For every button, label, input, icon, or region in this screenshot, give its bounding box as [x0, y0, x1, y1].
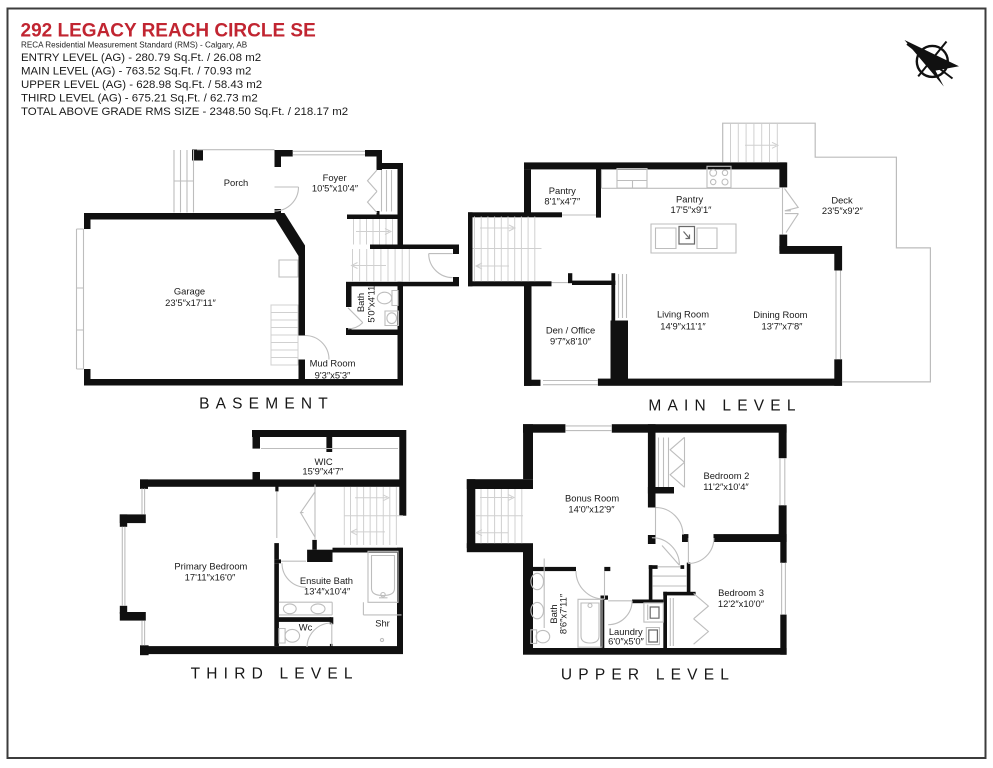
svg-text:13'4″x10'4″: 13'4″x10'4″ [304, 585, 351, 596]
svg-text:13'7″x7'8″: 13'7″x7'8″ [762, 320, 804, 331]
svg-text:BASEMENT: BASEMENT [199, 396, 334, 413]
svg-text:10'5″x10'4″: 10'5″x10'4″ [312, 183, 359, 194]
svg-text:8'6″x7'11″: 8'6″x7'11″ [558, 593, 569, 634]
svg-text:THIRD LEVEL: THIRD LEVEL [191, 666, 359, 683]
svg-text:MAIN LEVEL (AG) - 763.52 Sq.Ft: MAIN LEVEL (AG) - 763.52 Sq.Ft. / 70.93 … [21, 66, 251, 78]
svg-text:14'0″x12'9″: 14'0″x12'9″ [568, 504, 615, 515]
svg-text:Shr: Shr [375, 618, 390, 629]
svg-text:292 LEGACY REACH CIRCLE SE: 292 LEGACY REACH CIRCLE SE [21, 21, 316, 42]
svg-text:9'3″x5'3″: 9'3″x5'3″ [315, 370, 351, 381]
svg-text:Deck: Deck [831, 195, 853, 206]
svg-text:Primary Bedroom: Primary Bedroom [174, 560, 247, 571]
svg-text:23'5″x17'11″: 23'5″x17'11″ [165, 297, 216, 308]
svg-text:17'11″x16'0″: 17'11″x16'0″ [185, 571, 236, 582]
svg-text:6'0″x5'0″: 6'0″x5'0″ [608, 636, 644, 647]
svg-text:Porch: Porch [224, 177, 249, 188]
svg-text:UPPER LEVEL: UPPER LEVEL [561, 667, 735, 684]
svg-text:23'5″x9'2″: 23'5″x9'2″ [822, 205, 864, 216]
svg-text:15'9″x4'7″: 15'9″x4'7″ [302, 466, 344, 477]
svg-text:Living Room: Living Room [657, 309, 709, 320]
svg-text:Den / Office: Den / Office [546, 325, 595, 336]
svg-text:Mud Room: Mud Room [310, 358, 356, 369]
svg-text:Dining Room: Dining Room [753, 309, 807, 320]
svg-text:9'7″x8'10″: 9'7″x8'10″ [550, 336, 592, 347]
svg-text:Ensuite Bath: Ensuite Bath [300, 575, 353, 586]
svg-text:TOTAL ABOVE GRADE RMS SIZE - 2: TOTAL ABOVE GRADE RMS SIZE - 2348.50 Sq.… [21, 106, 348, 118]
svg-text:Foyer: Foyer [323, 172, 347, 183]
svg-text:Wc: Wc [299, 622, 313, 633]
svg-text:Bonus Room: Bonus Room [565, 492, 619, 503]
svg-text:ENTRY LEVEL (AG) - 280.79 Sq.F: ENTRY LEVEL (AG) - 280.79 Sq.Ft. / 26.08… [21, 52, 261, 64]
svg-text:Garage: Garage [174, 286, 205, 297]
svg-text:RECA Residential Measurement S: RECA Residential Measurement Standard (R… [21, 41, 247, 50]
svg-text:Bath: Bath [355, 293, 366, 312]
svg-text:11'2″x10'4″: 11'2″x10'4″ [703, 481, 749, 492]
svg-text:Bedroom 2: Bedroom 2 [703, 470, 749, 481]
svg-text:17'5″x9'1″: 17'5″x9'1″ [671, 204, 713, 215]
svg-text:MAIN LEVEL: MAIN LEVEL [648, 398, 801, 415]
svg-text:8'1″x4'7″: 8'1″x4'7″ [544, 196, 580, 207]
svg-text:UPPER LEVEL (AG) - 628.98 Sq.F: UPPER LEVEL (AG) - 628.98 Sq.Ft. / 58.43… [21, 79, 262, 91]
svg-text:Pantry: Pantry [549, 185, 576, 196]
svg-text:Bedroom 3: Bedroom 3 [718, 587, 764, 598]
svg-text:14'9″x11'1″: 14'9″x11'1″ [660, 321, 706, 332]
svg-text:5'0″x4'11″: 5'0″x4'11″ [366, 282, 377, 323]
svg-text:THIRD LEVEL (AG) - 675.21 Sq.F: THIRD LEVEL (AG) - 675.21 Sq.Ft. / 62.73… [21, 93, 258, 105]
svg-text:12'2″x10'0″: 12'2″x10'0″ [718, 598, 765, 609]
